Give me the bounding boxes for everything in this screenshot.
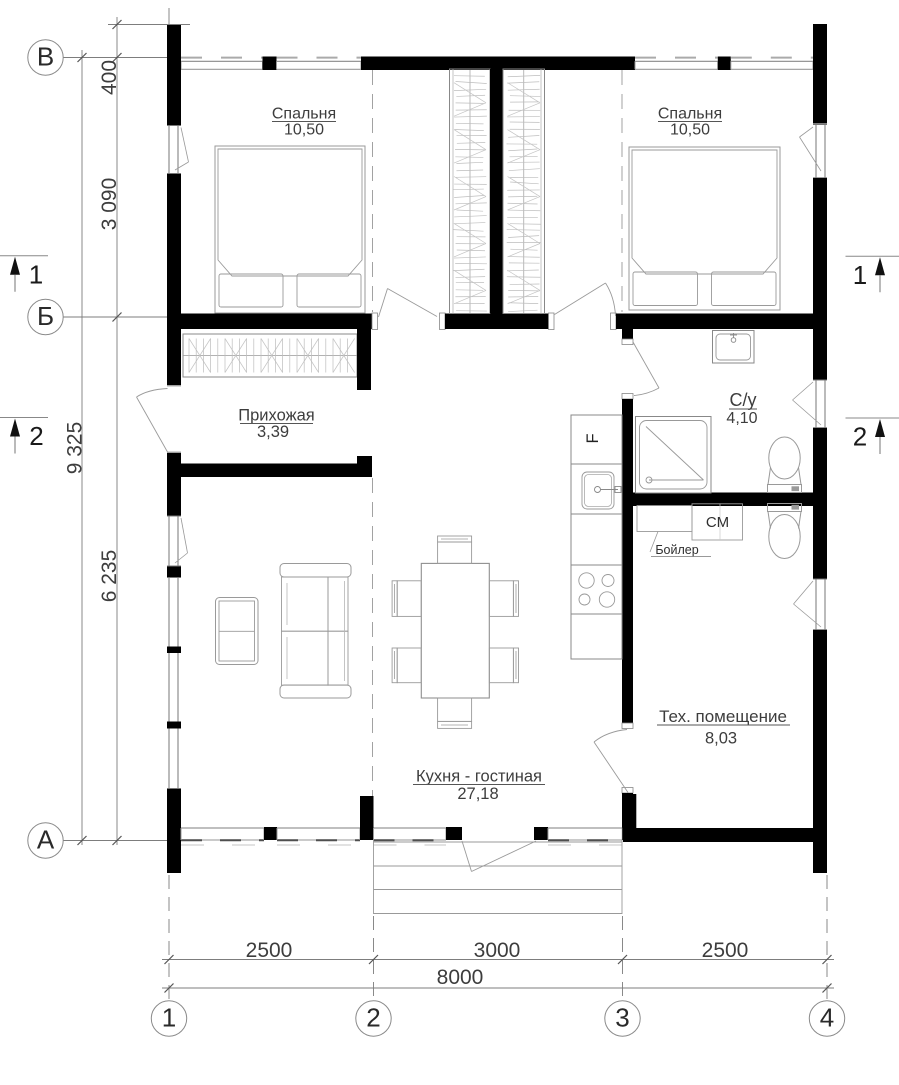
svg-text:27,18: 27,18 xyxy=(457,785,498,803)
svg-text:4,10: 4,10 xyxy=(726,410,757,427)
svg-text:400: 400 xyxy=(98,60,121,95)
svg-text:В: В xyxy=(37,42,54,72)
svg-text:А: А xyxy=(37,825,55,855)
svg-text:Тех. помещение: Тех. помещение xyxy=(659,707,787,726)
svg-text:10,50: 10,50 xyxy=(284,122,324,139)
svg-text:3: 3 xyxy=(615,1003,629,1033)
svg-text:Бойлер: Бойлер xyxy=(655,543,698,557)
svg-text:6 235: 6 235 xyxy=(98,550,121,603)
svg-text:8,03: 8,03 xyxy=(705,730,737,748)
svg-text:2: 2 xyxy=(853,422,867,452)
svg-text:СМ: СМ xyxy=(706,514,729,531)
svg-text:Б: Б xyxy=(37,301,54,331)
svg-text:3,39: 3,39 xyxy=(257,423,289,441)
svg-text:Прихожая: Прихожая xyxy=(238,407,314,425)
svg-text:Кухня - гостиная: Кухня - гостиная xyxy=(416,768,542,786)
svg-text:3 090: 3 090 xyxy=(98,178,121,231)
svg-text:Спальня: Спальня xyxy=(658,106,722,123)
svg-text:10,50: 10,50 xyxy=(670,122,710,139)
svg-text:2500: 2500 xyxy=(702,939,749,962)
svg-text:1: 1 xyxy=(162,1003,176,1033)
svg-text:8000: 8000 xyxy=(437,966,484,989)
svg-text:С/у: С/у xyxy=(730,390,757,410)
svg-text:1: 1 xyxy=(29,259,43,289)
svg-text:9 325: 9 325 xyxy=(64,422,87,475)
svg-text:4: 4 xyxy=(820,1003,834,1033)
svg-text:Спальня: Спальня xyxy=(272,106,336,123)
svg-text:3000: 3000 xyxy=(474,939,521,962)
svg-text:2: 2 xyxy=(366,1003,380,1033)
svg-text:F: F xyxy=(584,433,602,443)
svg-text:2500: 2500 xyxy=(246,939,293,962)
svg-text:2: 2 xyxy=(29,421,43,451)
svg-text:1: 1 xyxy=(853,260,867,290)
